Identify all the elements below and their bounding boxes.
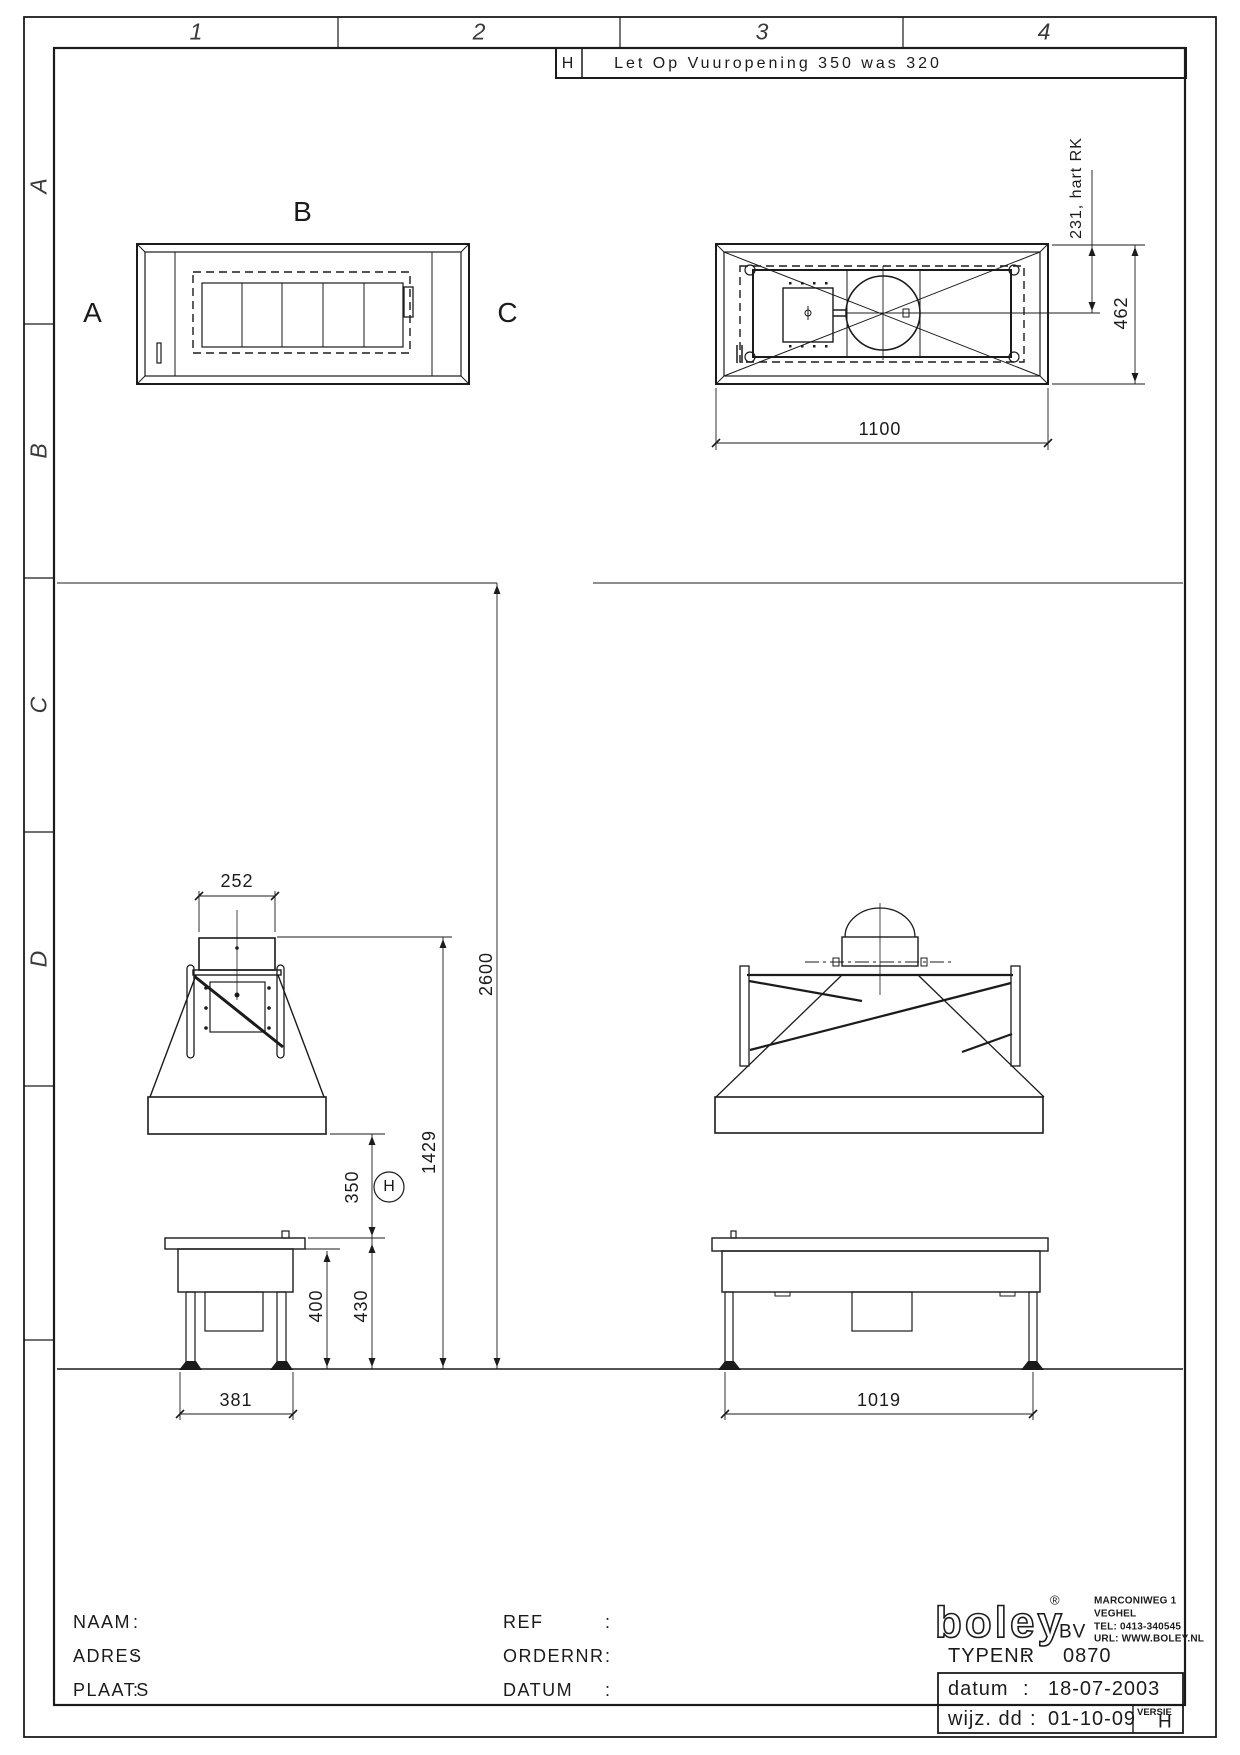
boley-logo-text: boley xyxy=(935,1598,1065,1647)
view-label-a: A xyxy=(83,299,103,327)
ordernr-colon: : xyxy=(605,1647,612,1665)
row-label-c: C xyxy=(28,697,51,714)
column-label-3: 3 xyxy=(756,21,769,44)
row-label-b: B xyxy=(28,443,51,458)
dim-plan-depth: 462 xyxy=(1112,296,1130,329)
revision-marker-balloon: H xyxy=(383,1179,395,1195)
dim-duct-width: 252 xyxy=(220,872,253,890)
drawing-linework: boley xyxy=(0,0,1240,1755)
ref-colon: : xyxy=(605,1613,612,1631)
column-label-1: 1 xyxy=(190,21,203,44)
wijz-label: wijz. dd xyxy=(948,1709,1023,1729)
datum-label: DATUM xyxy=(503,1681,573,1699)
datum-row-label: datum xyxy=(948,1679,1009,1699)
plaats-colon: : xyxy=(133,1681,140,1699)
column-label-2: 2 xyxy=(473,21,486,44)
versie-value: H xyxy=(1158,1713,1172,1732)
typenr-colon: : xyxy=(1023,1646,1030,1666)
dim-hood-top-height: 1429 xyxy=(420,1130,438,1174)
naam-colon: : xyxy=(133,1613,140,1631)
dim-table-height: 430 xyxy=(352,1289,370,1322)
dim-side-leg-span: 1019 xyxy=(857,1391,901,1409)
view-label-c: C xyxy=(497,299,518,327)
dim-hood-gap: 350 xyxy=(343,1170,361,1203)
revision-note-text: Let Op Vuuropening 350 was 320 xyxy=(614,56,942,72)
ref-label: REF xyxy=(503,1613,544,1631)
registered-mark: ® xyxy=(1050,1594,1060,1607)
datum-row-value: 18-07-2003 xyxy=(1048,1679,1160,1699)
top-view xyxy=(716,244,1100,384)
dim-table-clearance: 400 xyxy=(307,1289,325,1322)
adres-colon: : xyxy=(133,1647,140,1665)
address-line-2: VEGHEL xyxy=(1094,1609,1136,1622)
ordernr-label: ORDERNR xyxy=(503,1647,605,1665)
dim-ceiling-height: 2600 xyxy=(477,952,495,996)
plan-view xyxy=(137,244,469,384)
naam-label: NAAM xyxy=(73,1613,131,1631)
side-view xyxy=(712,903,1048,1370)
drawing-sheet: boley 1 2 3 4 A B C D H Let Op Vuuropeni… xyxy=(0,0,1240,1755)
datum-colon: : xyxy=(605,1681,612,1699)
typenr-value: 0870 xyxy=(1063,1646,1112,1666)
row-label-a: A xyxy=(28,178,51,193)
wijz-colon: : xyxy=(1030,1709,1037,1729)
column-label-4: 4 xyxy=(1038,21,1051,44)
view-label-b: B xyxy=(293,198,313,226)
dim-flue-center: 231, hart RK xyxy=(1069,137,1085,239)
front-view xyxy=(57,583,1183,1370)
boley-logo: boley xyxy=(935,1598,1065,1647)
revision-marker-cell: H xyxy=(562,56,577,72)
dim-plan-width: 1100 xyxy=(859,420,902,438)
dim-front-leg-span: 381 xyxy=(219,1391,252,1409)
row-label-d: D xyxy=(28,951,51,968)
logo-suffix: BV xyxy=(1059,1623,1086,1642)
wijz-value: 01-10-09 xyxy=(1048,1709,1136,1729)
address-line-3: TEL: 0413-340545 xyxy=(1094,1622,1181,1635)
sheet-frame xyxy=(24,17,1216,1737)
datum-row-colon: : xyxy=(1023,1679,1030,1699)
address-line-1: MARCONIWEG 1 xyxy=(1094,1596,1176,1609)
